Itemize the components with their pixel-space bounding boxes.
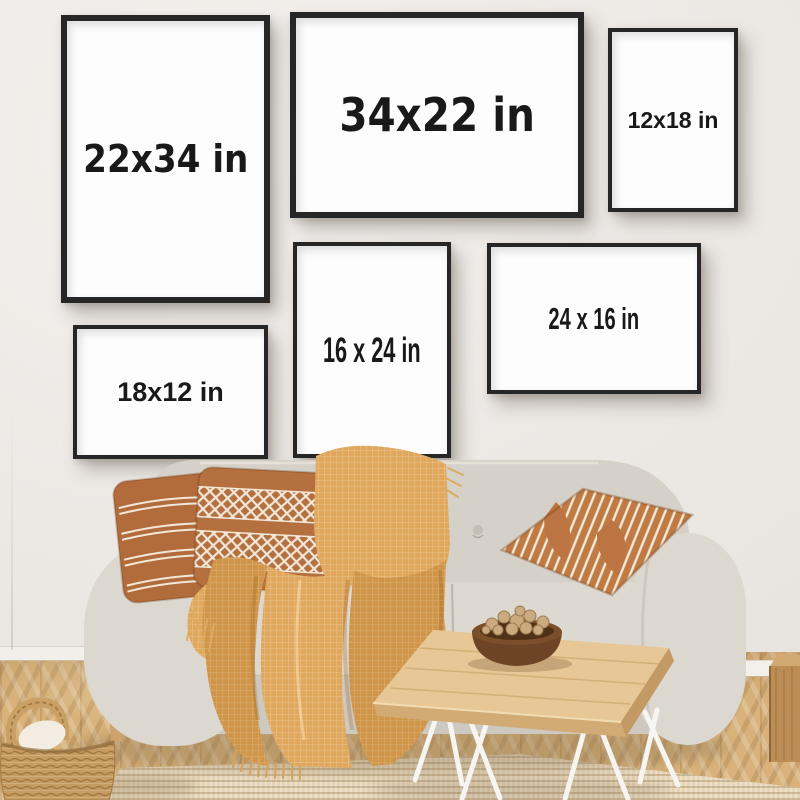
size-label: 24 x 16 in [549, 303, 640, 334]
size-frame-18x12: 18x12 in [73, 325, 268, 459]
size-frame-24x16: 24 x 16 in [487, 243, 701, 394]
size-frame-12x18: 12x18 in [608, 28, 738, 212]
wicker-basket [1, 702, 115, 800]
furniture-scene [0, 440, 800, 800]
living-room-scene: 22x34 in 34x22 in 12x18 in 16 x 24 in 24… [0, 0, 800, 800]
size-frame-16x24: 16 x 24 in [293, 242, 451, 458]
size-label: 34x22 in [339, 92, 535, 138]
wood-cube-stool [770, 652, 800, 762]
size-label: 18x12 in [117, 379, 224, 406]
size-frame-34x22: 34x22 in [290, 12, 584, 218]
size-label: 12x18 in [628, 109, 719, 132]
tufting-button [473, 525, 483, 535]
size-frame-22x34: 22x34 in [61, 15, 270, 303]
size-label: 16 x 24 in [323, 333, 421, 368]
size-label: 22x34 in [83, 140, 248, 178]
